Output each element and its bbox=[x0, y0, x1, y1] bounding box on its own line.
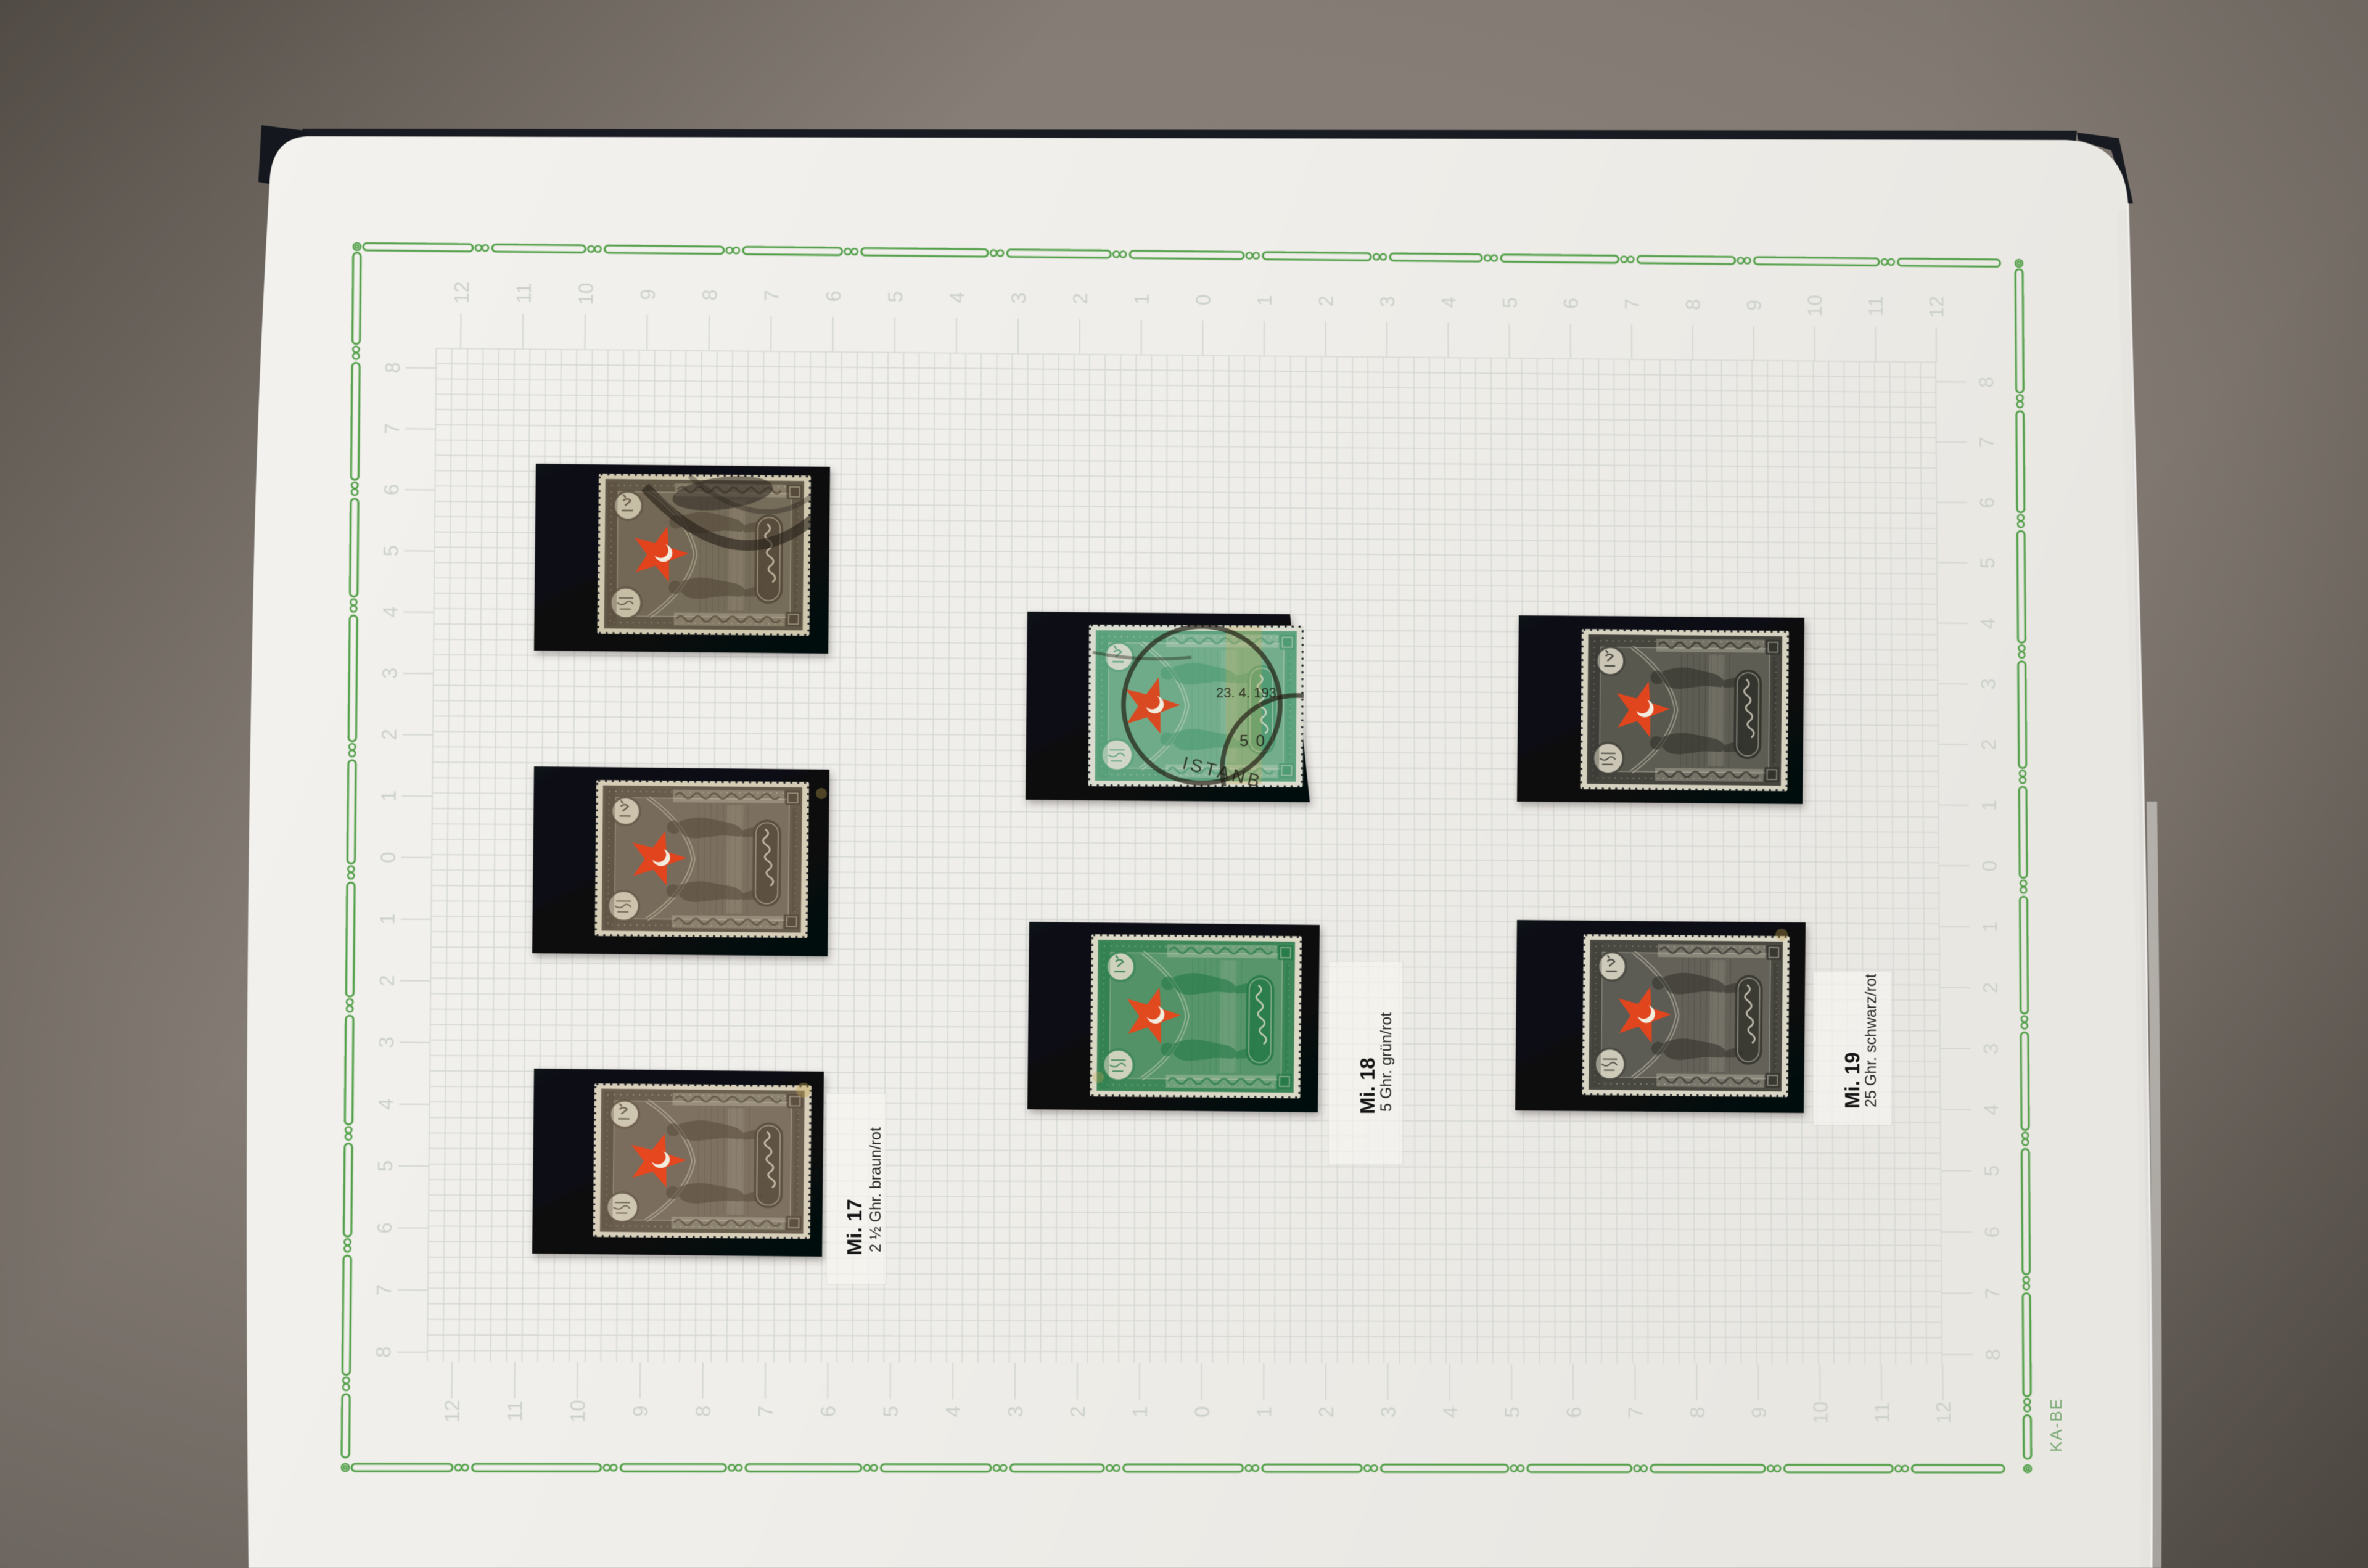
svg-text:5 Ghr. grün/rot: 5 Ghr. grün/rot bbox=[1378, 1012, 1395, 1112]
svg-text:KA-BE: KA-BE bbox=[2047, 1398, 2065, 1452]
svg-text:Mi. 17: Mi. 17 bbox=[843, 1199, 866, 1255]
svg-text:2 ½ Ghr. braun/rot: 2 ½ Ghr. braun/rot bbox=[867, 1127, 884, 1252]
svg-text:Mi. 19: Mi. 19 bbox=[1841, 1052, 1864, 1109]
svg-text:Mi. 18: Mi. 18 bbox=[1356, 1057, 1379, 1114]
svg-text:23. 4. 193: 23. 4. 193 bbox=[1216, 685, 1276, 700]
svg-text:50: 50 bbox=[1239, 731, 1272, 750]
svg-text:25 Ghr. schwarz/rot: 25 Ghr. schwarz/rot bbox=[1862, 974, 1880, 1107]
